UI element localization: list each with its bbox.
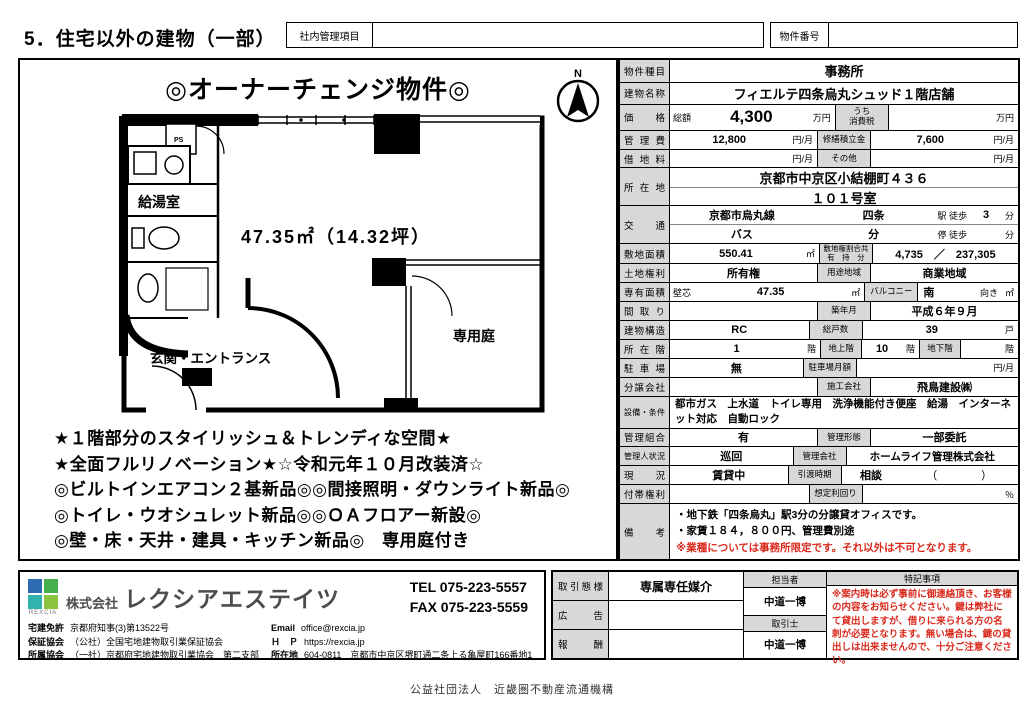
bus-stop-walk-min (971, 225, 1001, 243)
feature-item: ◎壁・床・天井・建具・キッチン新品◎ 専用庭付き (54, 528, 610, 554)
other-fee-label: その他 (817, 150, 871, 168)
zoning-label: 用途地域 (817, 264, 871, 282)
developer-value (670, 378, 817, 396)
guarantee-label: 保証協会 (28, 637, 64, 647)
license-column: 宅建免許京都府知事(3)第13522号 保証協会（公社）全国宅地建物取引業保証協… (28, 622, 259, 664)
attached-rights-value (670, 485, 809, 503)
equipment-label: 設備・条件 (624, 407, 665, 418)
row-current-status: 現況 賃貸中 引渡時期 相談 （ ） (620, 465, 1018, 484)
email-value: office@rexcia.jp (301, 623, 365, 633)
feature-item: ◎トイレ・ウオシュレット新品◎◎ＯＡフロアー新設◎ (54, 503, 610, 529)
page-title: 5．住宅以外の建物（一部） (24, 24, 276, 51)
site-area-unit: ㎡ (802, 244, 819, 263)
land-rent-label: 借地料 (624, 152, 665, 166)
tax-value (889, 105, 992, 130)
ps-label: PS (174, 137, 184, 144)
total-units-unit: 戸 (1001, 321, 1018, 339)
agent-name: 中道一博 (744, 632, 826, 659)
remarks-body: ・地下鉄「四条烏丸」駅3分の分譲貸オフィスです。 ・家賃１８４，８００円、管理費… (670, 504, 1018, 559)
office-address-value: 604-0811 京都市中京区堺町通二条上る亀屋町166番地1 (304, 650, 532, 660)
rail-line: 京都市烏丸線 (670, 206, 814, 224)
built-date-label: 築年月 (817, 302, 871, 320)
station-walk-label: 駅 徒歩 (934, 206, 972, 224)
internal-management-field (373, 23, 763, 47)
internal-management-label: 社内管理項目 (287, 23, 373, 47)
builder-label: 施工会社 (817, 378, 871, 396)
row-property-type: 物件種目 事務所 (620, 60, 1018, 82)
handover-paren: （ ） (900, 466, 1018, 484)
garden-label: 専用庭 (453, 328, 496, 344)
floor-unit: 階 (803, 340, 820, 358)
developer-label: 分譲会社 (624, 380, 665, 394)
parking-label: 駐車場 (624, 361, 665, 375)
price-value: 4,300 (694, 105, 809, 130)
feature-item: ◎ビルトインエアコン２基新品◎◎間接照明・ダウンライト新品◎ (54, 477, 610, 503)
office-address-label: 所在地 (271, 650, 298, 660)
repair-fund-label: 修繕積立金 (817, 131, 871, 149)
bus-stop-walk-unit: 分 (1001, 225, 1018, 243)
property-type-value: 事務所 (670, 60, 1018, 82)
logo-text: REXCIA (29, 610, 57, 616)
bus-label: バス (670, 225, 814, 243)
hp-value: https://rexcia.jp (304, 637, 365, 647)
site-area-value: 550.41 (670, 244, 802, 263)
price-unit: 万円 (809, 105, 835, 130)
advertising-label: 広告 (558, 608, 603, 622)
property-number-box: 物件番号 (770, 22, 1018, 48)
agency-info-box: REXCIA 株式会社 レクシアエステイツ TEL 075-223-5557 F… (18, 570, 546, 660)
layout-value (670, 302, 817, 320)
price-label: 価格 (624, 110, 665, 124)
exclusive-area-unit: ㎡ (847, 283, 864, 301)
company-name: レクシアエステイツ (124, 580, 340, 614)
guarantee-value: （公社）全国宅地建物取引業保証協会 (70, 637, 223, 647)
site-right-label-2: 有 持 分 (827, 254, 865, 263)
station-walk-unit: 分 (1001, 206, 1018, 224)
license-value: 京都府知事(3)第13522号 (70, 623, 169, 633)
transport-label: 交通 (624, 218, 665, 232)
exclusive-area-value: 47.35 (694, 283, 847, 301)
assoc-value: （一社）京都府宅地建物取引業協会 第二支部 (70, 650, 259, 660)
parking-value: 無 (670, 359, 803, 377)
manager-status-value: 巡回 (670, 447, 793, 465)
above-ground-value: 10 (862, 340, 902, 358)
total-units-value: 39 (863, 321, 1002, 339)
exclusive-area-label: 専有面積 (624, 285, 665, 299)
row-price: 価格 総額 4,300 万円 うち消費税 万円 (620, 104, 1018, 130)
remarks-line1: ・地下鉄「四条烏丸」駅3分の分譲貸オフィスです。 (676, 507, 1012, 523)
row-exclusive-area: 専有面積 壁芯 47.35 ㎡ バルコニー 南 向き ㎡ (620, 282, 1018, 301)
internal-management-box: 社内管理項目 (286, 22, 764, 48)
handover-value: 相談 (842, 466, 901, 484)
tax-unit: 万円 (992, 105, 1018, 130)
row-site-area: 敷地面積 550.41 ㎡ 敷地権割合共有 持 分 4,735 ／ 237,30… (620, 243, 1018, 263)
site-right-value: 4,735 ／ 237,305 (873, 244, 1018, 263)
structure-value: RC (670, 321, 809, 339)
builder-value: 飛鳥建設㈱ (871, 378, 1018, 396)
property-detail-table: 物件種目 事務所 建物名称 フィエルテ四条烏丸シュッド１階店舗 価格 総額 4,… (618, 58, 1020, 561)
property-number-field (829, 23, 1017, 47)
row-floor: 所在階 1 階 地上階 10 階 地下階 階 (620, 339, 1018, 358)
feature-item: ★全面フルリノベーション★☆令和元年１０月改装済☆ (54, 452, 610, 478)
row-management-fee: 管理費 12,800 円/月 修繕積立金 7,600 円/月 (620, 130, 1018, 149)
floor-plan-drawing: PS 給湯室 玄関・エントランス (26, 110, 610, 420)
below-ground-label: 地下階 (919, 340, 961, 358)
current-status-label: 現況 (624, 468, 665, 482)
site-area-label: 敷地面積 (624, 247, 665, 261)
facing-label: 向き (977, 283, 1001, 301)
bus-stop-walk-label: 停 徒歩 (934, 225, 972, 243)
floor-plan-panel: ◎オーナーチェンジ物件◎ N (18, 58, 618, 561)
above-ground-unit: 階 (902, 340, 919, 358)
fax-number: FAX 075-223-5559 (410, 597, 528, 617)
mgmt-form-value: 一部委託 (871, 429, 1018, 447)
structure-label: 建物構造 (624, 323, 665, 337)
repair-fund-unit: 円/月 (989, 131, 1018, 149)
row-fee: 報酬 (553, 629, 743, 658)
other-fee-unit: 円/月 (989, 150, 1018, 168)
row-deal-style: 取引態様 専属専任媒介 (553, 572, 743, 600)
special-notes-header: 特記事項 (827, 572, 1017, 586)
row-transport: 交通 京都市烏丸線 四条 駅 徒歩 3 分 バス 分 停 徒歩 分 (620, 205, 1018, 243)
yield-value (863, 485, 1002, 503)
deal-style-label: 取引態様 (558, 579, 603, 593)
row-equipment: 設備・条件 都市ガス 上水道 トイレ専用 洗浄機能付き便座 給湯 インターネット… (620, 396, 1018, 428)
yield-label: 想定利回り (809, 485, 863, 503)
parking-fee-label: 駐車場月額 (803, 359, 857, 377)
phone-block: TEL 075-223-5557 FAX 075-223-5559 (410, 577, 534, 618)
below-ground-value (961, 340, 1001, 358)
entrance-label: 玄関・エントランス (150, 350, 271, 366)
address-line1: 京都市中京区小結棚町４３６ (670, 168, 1018, 187)
mgmt-fee-value: 12,800 (670, 131, 788, 149)
row-advertising: 広告 (553, 600, 743, 629)
building-name-value: フィエルテ四条烏丸シュッド１階店舗 (670, 83, 1018, 104)
staff-name: 中道一博 (744, 588, 826, 616)
land-right-value: 所有権 (670, 264, 817, 282)
reins-footer: 公益社団法人 近畿圏不動産流通機構 (0, 681, 1024, 697)
balcony-label: バルコニー (864, 283, 918, 301)
land-rent-value (670, 150, 788, 168)
wall-core-label: 壁芯 (670, 283, 694, 301)
built-date-value: 平成６年９月 (871, 302, 1018, 320)
balcony-unit: ㎡ (1001, 283, 1018, 301)
remarks-line2: ・家賃１８４，８００円、管理費別途 (676, 523, 1012, 539)
tel-number: TEL 075-223-5557 (410, 577, 528, 597)
fee-value (609, 630, 743, 658)
zoning-value: 商業地域 (871, 264, 1018, 282)
land-rent-unit: 円/月 (788, 150, 817, 168)
other-fee-value (871, 150, 989, 168)
mgmt-company-value: ホームライフ管理株式会社 (847, 447, 1019, 465)
bus-min-unit: 分 (814, 225, 934, 243)
row-parking: 駐車場 無 駐車場月額 円/月 (620, 358, 1018, 377)
company-logo: REXCIA (28, 579, 58, 616)
fee-label: 報酬 (558, 637, 603, 651)
floor-value: 1 (670, 340, 803, 358)
yield-unit: ％ (1001, 485, 1018, 503)
address-label: 所在地 (624, 180, 665, 194)
row-mgmt-association: 管理組合 有 管理形態 一部委託 (620, 428, 1018, 447)
owner-change-headline: ◎オーナーチェンジ物件◎ (20, 70, 616, 106)
contact-column: Emailoffice@rexcia.jp Ｈ Ｐhttps://rexcia.… (271, 622, 532, 664)
agent-header: 取引士 (744, 616, 826, 632)
assoc-label: 所属協会 (28, 650, 64, 660)
special-notes-text: ※案内時は必ず事前に御連絡頂き、お客様の内容をお知らせください。鍵は弊社にて貸出… (827, 586, 1017, 670)
property-type-label: 物件種目 (624, 64, 665, 78)
row-building-name: 建物名称 フィエルテ四条烏丸シュッド１階店舗 (620, 82, 1018, 104)
layout-label: 間取り (624, 304, 665, 318)
parking-fee-value (857, 359, 990, 377)
property-number-label: 物件番号 (771, 23, 829, 47)
manager-status-label: 管理人状況 (624, 451, 665, 462)
below-ground-unit: 階 (1001, 340, 1018, 358)
mgmt-fee-unit: 円/月 (788, 131, 817, 149)
price-prefix: 総額 (670, 105, 694, 130)
land-right-label: 土地権利 (624, 266, 665, 280)
station-walk-min: 3 (971, 206, 1001, 224)
license-label: 宅建免許 (28, 623, 64, 633)
balcony-direction: 南 (918, 283, 977, 301)
current-status-value: 賃貸中 (670, 466, 788, 484)
building-name-label: 建物名称 (624, 86, 665, 100)
staff-header: 担当者 (744, 572, 826, 588)
row-layout: 間取り 築年月 平成６年９月 (620, 301, 1018, 320)
remarks-line3: ※業種については事務所限定です。それ以外は不可となります。 (676, 540, 1012, 556)
row-land-rent: 借地料 円/月 その他 円/月 (620, 149, 1018, 168)
feature-item: ★１階部分のスタイリッシュ＆トレンディな空間★ (54, 426, 610, 452)
tax-label-2: 消費税 (849, 117, 875, 127)
row-developer: 分譲会社 施工会社 飛鳥建設㈱ (620, 377, 1018, 396)
above-ground-label: 地上階 (820, 340, 862, 358)
remarks-label: 備考 (624, 525, 665, 539)
mgmt-form-label: 管理形態 (817, 429, 871, 447)
row-remarks: 備考 ・地下鉄「四条烏丸」駅3分の分譲貸オフィスです。 ・家賃１８４，８００円、… (620, 503, 1018, 559)
mgmt-company-label: 管理会社 (793, 447, 847, 465)
company-prefix: 株式会社 (66, 593, 118, 612)
email-label: Email (271, 623, 295, 633)
equipment-value: 都市ガス 上水道 トイレ専用 洗浄機能付き便座 給湯 インターネット対応 自動ロ… (675, 397, 1013, 426)
deal-style-value: 専属専任媒介 (609, 572, 743, 600)
total-units-label: 総戸数 (809, 321, 863, 339)
row-attached-rights: 付帯権利 想定利回り ％ (620, 484, 1018, 503)
floor-area-label: 47.35㎡（14.32坪） (241, 226, 431, 247)
mgmt-association-value: 有 (670, 429, 817, 447)
repair-fund-value: 7,600 (871, 131, 989, 149)
feature-list: ★１階部分のスタイリッシュ＆トレンディな空間★ ★全面フルリノベーション★☆令和… (54, 426, 610, 554)
compass-n-label: N (574, 68, 582, 80)
row-address: 所在地 京都市中京区小結棚町４３６ １０１号室 (620, 167, 1018, 205)
kitchen-room-label: 給湯室 (138, 194, 180, 210)
hp-label: Ｈ Ｐ (271, 637, 298, 647)
advertising-value (609, 601, 743, 629)
deal-info-table: 取引態様 専属専任媒介 広告 報酬 担当者 中道一博 取引士 中道一博 特記事項… (551, 570, 1019, 660)
row-structure: 建物構造 RC 総戸数 39 戸 (620, 320, 1018, 339)
handover-label: 引渡時期 (788, 466, 842, 484)
row-manager-status: 管理人状況 巡回 管理会社 ホームライフ管理株式会社 (620, 446, 1018, 465)
row-land-right: 土地権利 所有権 用途地域 商業地域 (620, 263, 1018, 282)
mgmt-fee-label: 管理費 (624, 133, 665, 147)
property-flyer-page: 5．住宅以外の建物（一部） 社内管理項目 物件番号 ◎オーナーチェンジ物件◎ N (0, 0, 1024, 724)
attached-rights-label: 付帯権利 (624, 487, 665, 501)
station-name: 四条 (814, 206, 934, 224)
mgmt-association-label: 管理組合 (624, 430, 665, 444)
floor-label: 所在階 (624, 342, 665, 356)
parking-fee-unit: 円/月 (990, 359, 1019, 377)
